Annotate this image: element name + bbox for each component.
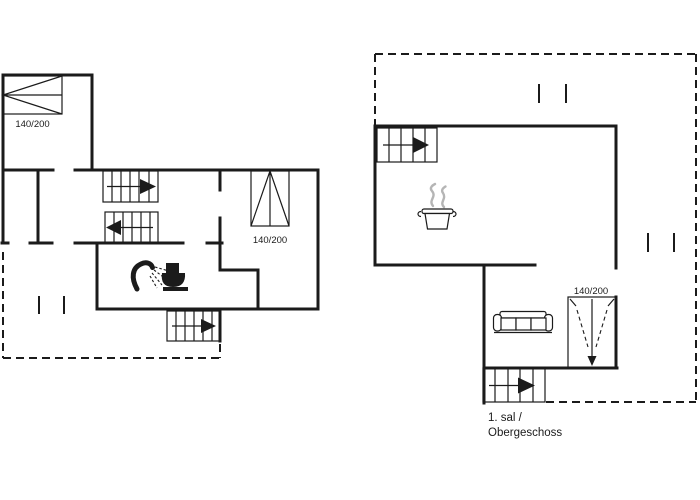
floor-caption-line1: 1. sal / — [488, 412, 523, 424]
staircase-entry-icon — [167, 311, 220, 341]
sofa-icon — [494, 312, 553, 333]
staircase-up-icon — [377, 128, 437, 162]
staircase-up-icon — [103, 171, 158, 202]
roof-dashed-outline — [375, 54, 696, 402]
double-bed-icon — [3, 76, 62, 114]
floor-caption-line2: Obergeschoss — [488, 427, 562, 439]
cooking-pot-icon — [418, 184, 456, 229]
upper-floor-plan: 140/200 1. sal / Obergeschoss — [375, 54, 696, 439]
upper-floor-walls — [375, 126, 617, 403]
staircase-down-icon — [105, 212, 158, 243]
bed-size-label: 140/200 — [253, 235, 287, 246]
staircase-down-icon — [483, 368, 545, 402]
double-bed-sloped-icon — [568, 297, 616, 368]
vent-ticks-top — [539, 84, 566, 103]
terrace-dashed-outline — [3, 252, 220, 358]
railing-ticks — [39, 296, 64, 314]
floor-plan-page: 140/200 140/200 — [0, 0, 700, 500]
bed-size-label: 140/200 — [574, 286, 608, 297]
vent-ticks-right — [648, 233, 674, 252]
floor-plan-drawing: 140/200 140/200 — [0, 0, 700, 500]
double-bed-icon — [251, 171, 289, 226]
bed-size-label: 140/200 — [15, 119, 49, 130]
toilet-icon — [162, 263, 188, 291]
ground-floor-plan: 140/200 140/200 — [2, 75, 318, 358]
